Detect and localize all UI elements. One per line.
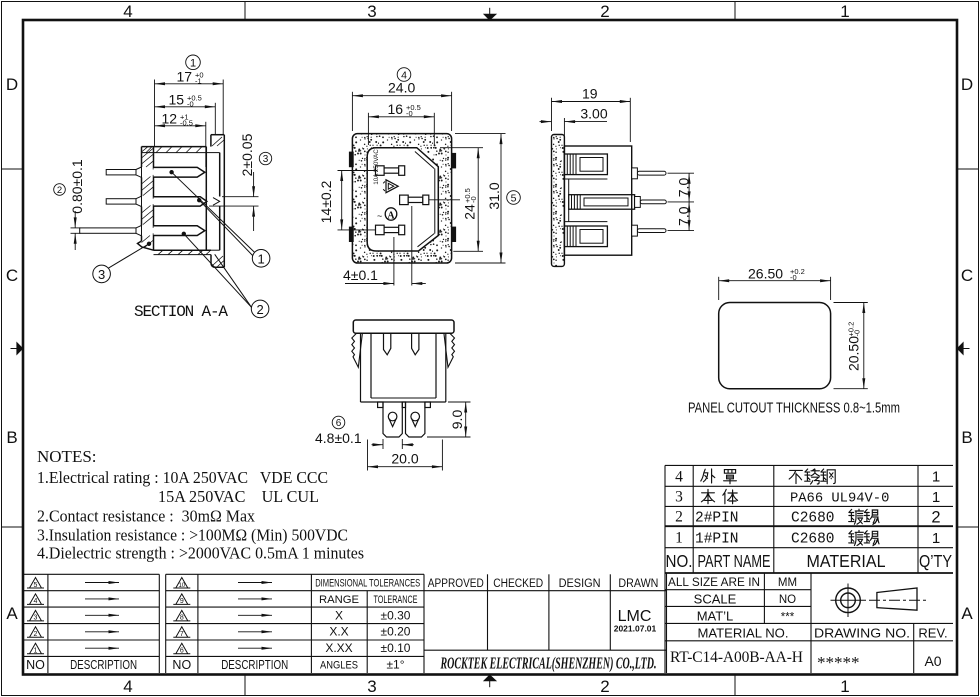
svg-text:MM: MM [778, 577, 797, 589]
svg-text:16: 16 [388, 101, 404, 117]
svg-text:3: 3 [367, 2, 376, 21]
svg-text:SCALE: SCALE [694, 591, 737, 606]
svg-text:4: 4 [401, 70, 407, 82]
svg-text:DRAWN: DRAWN [618, 578, 658, 590]
svg-text:3: 3 [34, 615, 38, 622]
svg-text:DIMENSIONAL TOLERANCES: DIMENSIONAL TOLERANCES [315, 577, 420, 589]
svg-text:6: 6 [180, 648, 184, 655]
svg-text:14±0.2: 14±0.2 [318, 180, 334, 223]
svg-text:3: 3 [98, 267, 105, 282]
svg-text:17: 17 [177, 69, 193, 85]
svg-text:±0.30: ±0.30 [381, 608, 411, 622]
svg-text:-1: -1 [195, 76, 202, 85]
svg-text:1: 1 [840, 677, 849, 696]
svg-text:2#PIN: 2#PIN [695, 510, 739, 526]
svg-text:C2680: C2680 [791, 532, 835, 548]
svg-text:2.Contact resistance : 30mΩ M: 2.Contact resistance : 30mΩ Max [37, 507, 255, 526]
svg-text:DRAWING NO.: DRAWING NO. [814, 626, 910, 641]
svg-text:C2680: C2680 [791, 510, 835, 526]
svg-text:9: 9 [180, 598, 184, 605]
svg-text:2: 2 [256, 302, 263, 317]
svg-text:DESCRIPTION: DESCRIPTION [70, 658, 137, 672]
svg-text:MAT’L: MAT’L [697, 608, 734, 623]
svg-text:10: 10 [178, 583, 185, 589]
svg-text:-0: -0 [406, 109, 413, 118]
svg-text:24: 24 [462, 204, 478, 220]
svg-text:~: ~ [377, 211, 382, 221]
svg-text:2: 2 [600, 677, 609, 696]
svg-text:9.0: 9.0 [449, 410, 465, 430]
svg-text:±1°: ±1° [386, 658, 404, 672]
svg-text:C: C [961, 266, 973, 285]
svg-text:7.0: 7.0 [675, 206, 691, 226]
svg-text:ROCKTEK ELECTRICAL(SHENZHEN) C: ROCKTEK ELECTRICAL(SHENZHEN) CO.,LTD. [440, 654, 657, 673]
svg-text:15A 250VAC UL CUL: 15A 250VAC UL CUL [158, 487, 319, 506]
svg-text:±0.10: ±0.10 [381, 641, 411, 655]
svg-text:3: 3 [367, 677, 376, 696]
svg-text:CHECKED: CHECKED [493, 578, 543, 590]
svg-text:DESIGN: DESIGN [559, 578, 601, 590]
svg-text:ANGLES: ANGLES [320, 660, 358, 672]
svg-text:NO: NO [779, 594, 796, 606]
svg-text:-0: -0 [187, 99, 194, 108]
svg-text:A: A [387, 210, 395, 221]
svg-text:RT-C14-A00B-AA-H: RT-C14-A00B-AA-H [670, 649, 803, 666]
svg-text:0.80±0.1: 0.80±0.1 [69, 159, 85, 214]
svg-text:X: X [335, 608, 343, 622]
svg-text:LMC: LMC [618, 608, 652, 625]
svg-text:NOTES:: NOTES: [37, 447, 97, 466]
svg-text:8: 8 [180, 615, 184, 622]
svg-text:6: 6 [336, 418, 342, 429]
svg-text:-0: -0 [790, 273, 797, 282]
svg-text:20.0: 20.0 [391, 451, 418, 467]
svg-text:26.50: 26.50 [748, 266, 783, 282]
svg-text:1.Electrical rating : 10A 250V: 1.Electrical rating : 10A 250VAC VDE CCC [37, 468, 328, 487]
svg-text:C: C [6, 266, 18, 285]
svg-text:2: 2 [675, 509, 683, 526]
svg-text:3: 3 [263, 154, 269, 165]
svg-text:4: 4 [123, 2, 132, 21]
svg-text:Q’TY: Q’TY [919, 551, 952, 571]
svg-text:A: A [961, 604, 973, 623]
svg-text:X.XX: X.XX [325, 641, 352, 655]
svg-text:7.0: 7.0 [675, 178, 691, 198]
svg-text:2: 2 [931, 508, 940, 526]
svg-text:NO: NO [26, 658, 45, 672]
svg-text:ALL SIZE ARE IN: ALL SIZE ARE IN [668, 577, 760, 589]
svg-text:10A 250VAC: 10A 250VAC [373, 149, 380, 185]
svg-text:1#PIN: 1#PIN [695, 532, 739, 548]
svg-text:5: 5 [34, 582, 38, 589]
svg-text:1: 1 [257, 251, 264, 266]
svg-text:4: 4 [675, 468, 683, 485]
svg-text:1: 1 [932, 489, 940, 506]
svg-text:SECTION A-A: SECTION A-A [134, 303, 228, 321]
svg-text:PANEL CUTOUT THICKNESS 0.8~1.5: PANEL CUTOUT THICKNESS 0.8~1.5mm [688, 401, 900, 417]
svg-text:4: 4 [123, 677, 132, 696]
svg-text:RANGE: RANGE [319, 594, 359, 606]
svg-text:-0: -0 [853, 330, 862, 337]
svg-text:MATERIAL: MATERIAL [807, 551, 886, 571]
svg-text:B: B [6, 428, 17, 447]
svg-text:DESCRIPTION: DESCRIPTION [221, 658, 288, 672]
svg-text:3: 3 [675, 489, 683, 506]
svg-text:-0.5: -0.5 [180, 118, 193, 127]
svg-text:4±0.1: 4±0.1 [343, 267, 378, 283]
svg-text:4.8±0.1: 4.8±0.1 [315, 430, 362, 446]
svg-text:2: 2 [57, 185, 62, 196]
svg-text:±0.20: ±0.20 [381, 625, 411, 639]
svg-text:1: 1 [190, 58, 196, 70]
svg-text:REV.: REV. [918, 626, 947, 641]
svg-text:1: 1 [675, 530, 683, 547]
svg-text:1: 1 [34, 648, 38, 655]
svg-text:31.0: 31.0 [486, 182, 502, 209]
svg-text:TOLERANCE: TOLERANCE [374, 594, 418, 606]
svg-text:NO: NO [172, 658, 191, 672]
svg-text:A: A [6, 604, 18, 623]
svg-text:D: D [6, 75, 18, 94]
svg-text:1: 1 [840, 2, 849, 21]
svg-text:NO.: NO. [666, 551, 693, 571]
svg-text:***: *** [781, 612, 795, 624]
svg-text:PART NAME: PART NAME [698, 551, 771, 571]
svg-text:19: 19 [582, 86, 598, 102]
svg-text:*****: ***** [817, 653, 860, 672]
svg-text:X.X: X.X [329, 625, 348, 639]
svg-text:APPROVED: APPROVED [428, 578, 484, 590]
svg-text:5: 5 [511, 193, 517, 205]
svg-text:15: 15 [169, 92, 185, 108]
svg-text:3.00: 3.00 [580, 106, 607, 122]
svg-text:1: 1 [932, 469, 940, 486]
svg-text:2: 2 [34, 631, 38, 638]
svg-text:4.Dielectric strength : >2000V: 4.Dielectric strength : >2000VAC 0.5mA 1… [37, 544, 364, 563]
svg-text:PA66 UL94V-0: PA66 UL94V-0 [790, 492, 889, 507]
svg-text:7: 7 [180, 631, 184, 638]
svg-text:B: B [961, 428, 972, 447]
svg-text:24.0: 24.0 [388, 80, 415, 96]
svg-text:3.Insulation resistance : >100: 3.Insulation resistance : >100MΩ (Min) 5… [37, 526, 348, 545]
svg-text:MATERIAL NO.: MATERIAL NO. [698, 626, 789, 641]
svg-text:12: 12 [162, 111, 178, 127]
svg-text:-0: -0 [469, 196, 478, 203]
svg-text:1: 1 [932, 530, 940, 547]
svg-text:D: D [961, 75, 973, 94]
svg-text:2±0.05: 2±0.05 [239, 133, 255, 176]
svg-text:20.50: 20.50 [846, 336, 862, 371]
svg-text:A0: A0 [924, 653, 941, 669]
svg-text:2021.07.01: 2021.07.01 [614, 624, 657, 634]
svg-text:2: 2 [600, 2, 609, 21]
svg-text:4: 4 [34, 598, 38, 605]
